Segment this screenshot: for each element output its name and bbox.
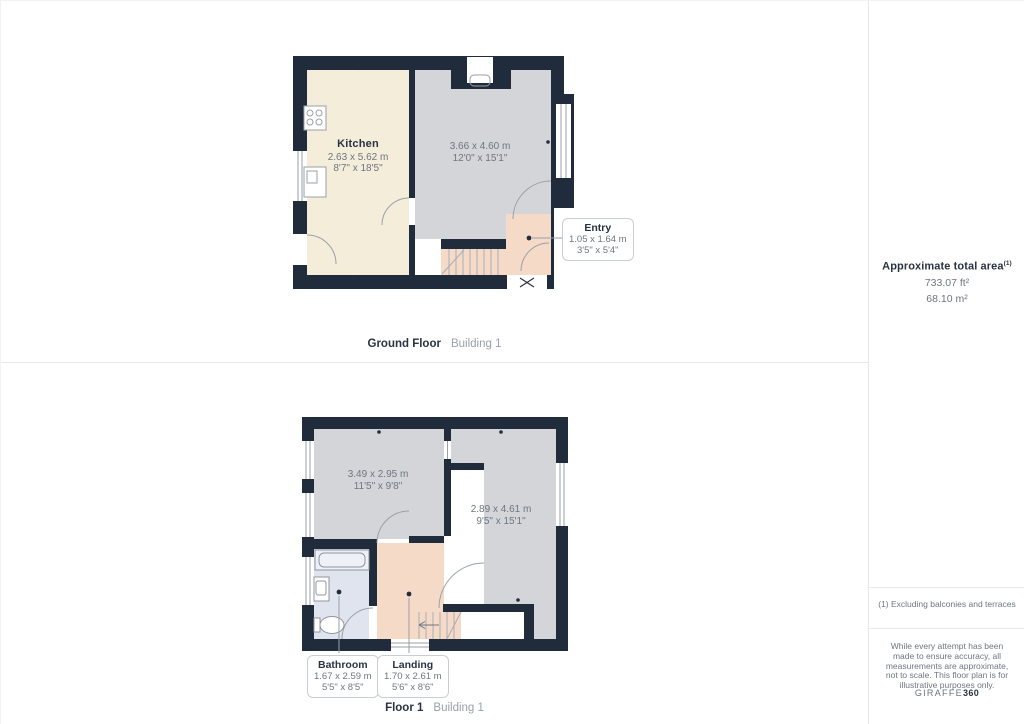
floor1-left-window-1 [302, 441, 314, 479]
landing-name: Landing [384, 660, 442, 671]
total-area-title-text: Approximate total area [882, 261, 1003, 273]
kitchen-metric: 2.63 x 5.62 m [328, 152, 389, 164]
floor1-right-window [556, 463, 568, 526]
sink-icon [314, 577, 329, 601]
counter-icon [304, 167, 326, 197]
total-area-title: Approximate total area(1) [869, 260, 1024, 273]
stove-icon [304, 106, 326, 130]
landing-imperial: 5'6" x 8'6" [384, 682, 442, 693]
stairs-wall [441, 239, 506, 249]
bathroom-tag: Bathroom 1.67 x 2.59 m 5'5" x 8'5" [307, 655, 379, 698]
bedroom-a-metric: 3.49 x 2.95 m [348, 469, 409, 481]
floor-1-footer: Floor 1Building 1 [1, 702, 868, 714]
bathroom-top-wall [314, 539, 377, 549]
entry-metric: 1.05 x 1.64 m [569, 234, 627, 245]
giraffe360-logo: GIRAFFE360 [869, 688, 1024, 698]
entry-tag: Entry 1.05 x 1.64 m 3'5" x 5'4" [562, 218, 634, 261]
left-door-opening [293, 234, 307, 265]
stair-void [415, 239, 441, 275]
entry-label-dot [527, 236, 532, 241]
entry-imperial: 3'5" x 5'4" [569, 245, 627, 256]
ground-floor-building: Building 1 [451, 338, 502, 350]
total-area-footnote-ref: (1) [1004, 260, 1012, 267]
floorplan-page: Kitchen 2.63 x 5.62 m 8'7" x 18'5" 3.66 … [0, 0, 1024, 724]
floor-1-name: Floor 1 [385, 702, 423, 714]
sidebar-divider-bottom [869, 628, 1024, 629]
void-top-wall [443, 604, 534, 612]
total-area-sqm: 68.10 m² [869, 293, 1024, 305]
area-footnote: (1) Excluding balconies and terraces [869, 599, 1024, 609]
bedroom-b-area-bottom [534, 612, 556, 639]
bedroom-b-label: 2.89 x 4.61 m 9'5" x 15'1" [471, 504, 532, 527]
logo-number: 360 [963, 688, 979, 698]
bedroom-b-area [484, 463, 556, 612]
ground-floor-footer: Ground FloorBuilding 1 [1, 338, 868, 350]
ground-floor-section: Kitchen 2.63 x 5.62 m 8'7" x 18'5" 3.66 … [1, 1, 868, 363]
logo-name: GIRAFFE [915, 688, 963, 698]
floor-1-plan [300, 415, 570, 653]
bathroom-window [302, 557, 314, 605]
bathtub-icon [315, 550, 369, 570]
bedroom-b-area-top [451, 429, 556, 463]
kitchen-living-wall-upper [409, 70, 415, 198]
floor-1-section: 3.49 x 2.95 m 11'5" x 9'8" 2.89 x 4.61 m… [1, 363, 868, 724]
entry-name: Entry [569, 223, 627, 234]
landing-top-wall [409, 536, 444, 543]
bathroom-name: Bathroom [314, 660, 372, 671]
disclaimer-text: While every attempt has been made to ens… [869, 642, 1024, 691]
stairwell-void [461, 612, 524, 639]
floor1-left-window-2 [302, 493, 314, 537]
bedroom-b-metric: 2.89 x 4.61 m [471, 504, 532, 516]
bedroom-b-imperial: 9'5" x 15'1" [471, 516, 532, 528]
sidebar-divider-top [869, 587, 1024, 588]
living-imperial: 12'0" x 15'1" [450, 153, 511, 165]
landing-metric: 1.70 x 2.61 m [384, 671, 442, 682]
closet-wall [444, 463, 484, 470]
landing-tag: Landing 1.70 x 2.61 m 5'6" x 8'6" [377, 655, 449, 698]
kitchen-living-wall-lower [409, 225, 415, 275]
bedroom-a-label: 3.49 x 2.95 m 11'5" x 9'8" [348, 469, 409, 492]
total-area-sqft: 733.07 ft² [869, 277, 1024, 289]
bathroom-metric: 1.67 x 2.59 m [314, 671, 372, 682]
bedroom-a-imperial: 11'5" x 9'8" [348, 481, 409, 493]
bathroom-label-dot [337, 590, 342, 595]
front-door [507, 275, 547, 289]
fireplace-niche [467, 57, 493, 83]
floor-1-building: Building 1 [433, 702, 484, 714]
kitchen-name: Kitchen [328, 139, 389, 151]
kitchen-label: Kitchen 2.63 x 5.62 m 8'7" x 18'5" [328, 139, 389, 175]
void-right-wall [524, 612, 534, 639]
living-metric: 3.66 x 4.60 m [450, 141, 511, 153]
landing-label-dot [407, 592, 412, 597]
living-label: 3.66 x 4.60 m 12'0" x 15'1" [450, 141, 511, 164]
total-area-block: Approximate total area(1) 733.07 ft² 68.… [869, 260, 1024, 305]
entry-area [506, 214, 551, 275]
bathroom-landing-wall [369, 549, 377, 606]
right-window [556, 104, 571, 178]
living-area-lower [415, 214, 506, 239]
kitchen-imperial: 8'7" x 18'5" [328, 163, 389, 175]
floor1-bottom-window [391, 639, 429, 651]
bedroom-b-door-arc [439, 563, 484, 608]
ground-floor-name: Ground Floor [368, 338, 441, 350]
stairs-area [441, 249, 506, 275]
info-sidebar: Approximate total area(1) 733.07 ft² 68.… [868, 1, 1024, 724]
bathroom-imperial: 5'5" x 8'5" [314, 682, 372, 693]
